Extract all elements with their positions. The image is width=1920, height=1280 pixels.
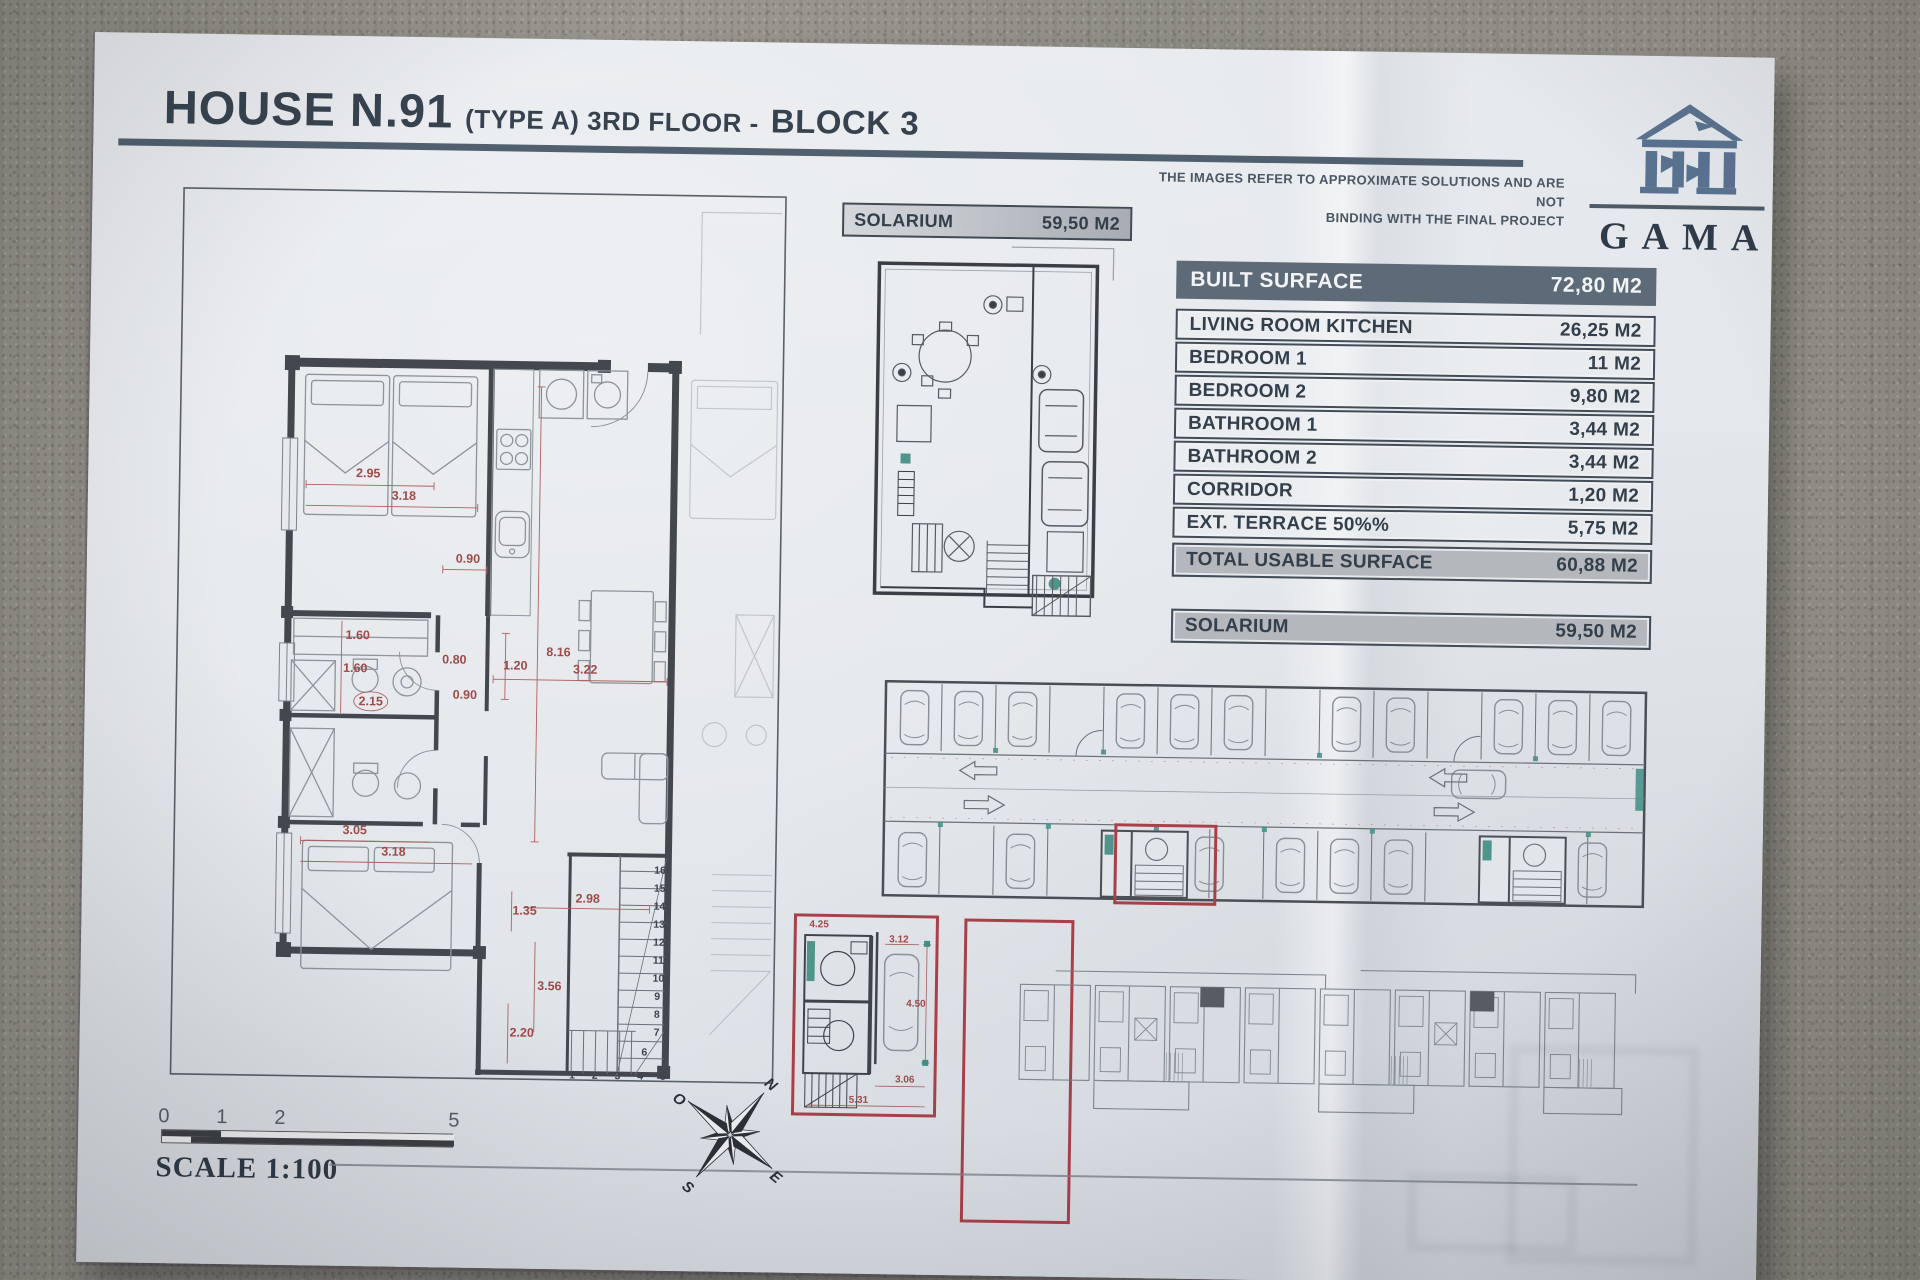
scale-tick: 0 [158, 1105, 169, 1128]
svg-text:3.22: 3.22 [573, 662, 598, 676]
total-label: TOTAL USABLE SURFACE [1186, 549, 1433, 575]
gama-temple-icon [1623, 96, 1755, 198]
svg-text:1.35: 1.35 [512, 904, 537, 918]
solarium-plan-label: SOLARIUM [854, 209, 954, 232]
svg-text:3.56: 3.56 [537, 979, 562, 993]
logo-word: GAMA [1589, 214, 1765, 261]
row-value: 1,20 M2 [1568, 484, 1639, 507]
page-title: HOUSE N.91 (TYPE A) 3RD FLOOR - BLOCK 3 [163, 79, 919, 146]
table-row: LIVING ROOM KITCHEN 26,25 M2 [1175, 309, 1655, 347]
table-row: CORRIDOR 1,20 M2 [1173, 474, 1653, 512]
windows [275, 438, 298, 933]
svg-text:1.60: 1.60 [345, 628, 370, 642]
row-value: 9,80 M2 [1570, 385, 1641, 408]
row-value: 3,44 M2 [1569, 451, 1640, 474]
surface-table: BUILT SURFACE 72,80 M2 LIVING ROOM KITCH… [1177, 261, 1657, 268]
svg-text:4.25: 4.25 [809, 919, 829, 930]
solarium-label: SOLARIUM [1185, 615, 1289, 639]
svg-text:2.20: 2.20 [509, 1025, 534, 1039]
stair-core-2 [1479, 836, 1566, 903]
svg-text:3.05: 3.05 [342, 823, 367, 837]
solarium-floorplan [836, 236, 1132, 622]
solarium-plan-value: 59,50 M2 [1042, 212, 1121, 234]
dimension-lines [297, 383, 671, 1066]
plan-sheet: HOUSE N.91 (TYPE A) 3RD FLOOR - BLOCK 3 … [76, 32, 1775, 1280]
svg-text:3.18: 3.18 [381, 844, 406, 858]
scale-tick: 5 [448, 1110, 459, 1133]
svg-text:0.90: 0.90 [453, 688, 478, 702]
svg-text:15: 15 [654, 883, 666, 895]
row-label: CORRIDOR [1187, 478, 1293, 502]
row-value: 26,25 M2 [1560, 319, 1642, 342]
table-total-row: TOTAL USABLE SURFACE 60,88 M2 [1172, 543, 1652, 584]
row-label: BEDROOM 2 [1188, 379, 1306, 403]
svg-text:5.31: 5.31 [849, 1095, 869, 1106]
svg-text:13: 13 [653, 919, 665, 931]
svg-text:2.98: 2.98 [575, 891, 600, 905]
svg-text:6: 6 [641, 1047, 647, 1059]
title-block: BLOCK 3 [770, 102, 919, 142]
logo-underline [1589, 204, 1764, 211]
row-label: BEDROOM 1 [1189, 346, 1307, 370]
svg-text:3.18: 3.18 [392, 489, 417, 503]
scale-label: SCALE 1:100 [155, 1151, 338, 1187]
svg-text:4.50: 4.50 [906, 999, 926, 1010]
header-value: 72,80 M2 [1551, 273, 1643, 298]
aisle-arrows [959, 761, 1475, 821]
scale-bar-graphic [161, 1129, 453, 1147]
main-floorplan: 16 15 14 13 12 11 10 9 8 7 6 1 2 3 4 5 [169, 186, 788, 1085]
compass-n: N [761, 1075, 781, 1096]
compass-e: E [766, 1168, 785, 1188]
title-type-floor: (TYPE A) 3RD FLOOR - [465, 104, 759, 140]
svg-text:11: 11 [653, 955, 664, 967]
disclaimer-line1: THE IMAGES REFER TO APPROXIMATE SOLUTION… [1144, 168, 1565, 212]
neighbour-unit [682, 212, 783, 1035]
table-header-row: BUILT SURFACE 72,80 M2 [1176, 261, 1657, 306]
core-block-1 [1200, 987, 1224, 1007]
compass-s: S [679, 1178, 697, 1198]
compass-o: O [669, 1089, 689, 1110]
parking-garage-plan [877, 653, 1656, 915]
table-row: BEDROOM 1 11 M2 [1175, 342, 1655, 380]
show-through-ghost [1406, 1172, 1577, 1255]
svg-text:9: 9 [654, 991, 660, 1003]
gama-logo: GAMA [1589, 95, 1766, 261]
table-row: BATHROOM 2 3,44 M2 [1173, 441, 1653, 479]
row-label: BATHROOM 1 [1188, 412, 1318, 436]
scale-tick: 2 [274, 1107, 285, 1130]
svg-text:14: 14 [654, 901, 666, 913]
svg-text:8: 8 [654, 1009, 660, 1021]
svg-text:3.12: 3.12 [889, 934, 909, 945]
svg-text:1.20: 1.20 [503, 658, 528, 672]
parking-detail-plan: 4.25 3.12 4.50 3.06 5.31 [790, 913, 939, 1118]
svg-text:2.15: 2.15 [358, 694, 383, 708]
svg-text:3.06: 3.06 [895, 1074, 915, 1085]
stairs [567, 854, 666, 1077]
row-label: LIVING ROOM KITCHEN [1189, 313, 1412, 338]
table-row: BATHROOM 1 3,44 M2 [1174, 408, 1654, 446]
solarium-plan-header: SOLARIUM 59,50 M2 [842, 202, 1132, 240]
svg-text:7: 7 [654, 1027, 660, 1039]
row-label: BATHROOM 2 [1187, 445, 1317, 469]
scale-tick: 1 [216, 1106, 227, 1129]
svg-text:12: 12 [653, 937, 665, 949]
solarium-value: 59,50 M2 [1555, 621, 1637, 644]
header-label: BUILT SURFACE [1190, 268, 1363, 295]
row-label: EXT. TERRACE 50%% [1186, 511, 1389, 536]
table-row: EXT. TERRACE 50%% 5,75 M2 [1172, 507, 1652, 545]
table-solarium-row: SOLARIUM 59,50 M2 [1171, 609, 1651, 650]
row-value: 5,75 M2 [1568, 517, 1639, 540]
total-value: 60,88 M2 [1556, 555, 1638, 578]
core-block-2 [1470, 991, 1494, 1011]
title-house: HOUSE N.91 [163, 79, 453, 138]
svg-text:16: 16 [654, 865, 666, 877]
row-value: 3,44 M2 [1569, 418, 1640, 441]
svg-text:0.80: 0.80 [442, 652, 467, 666]
svg-text:8.16: 8.16 [546, 645, 571, 659]
disclaimer: THE IMAGES REFER TO APPROXIMATE SOLUTION… [1144, 168, 1565, 231]
svg-text:0.90: 0.90 [456, 552, 481, 566]
svg-text:2.95: 2.95 [356, 466, 381, 480]
compass-rose-icon: N E S O [659, 1062, 801, 1204]
row-value: 11 M2 [1588, 352, 1642, 375]
table-row: BEDROOM 2 9,80 M2 [1174, 375, 1654, 413]
svg-text:1 2 3 4 5: 1 2 3 4 5 [569, 1069, 673, 1083]
svg-text:10: 10 [652, 973, 664, 985]
svg-text:1.60: 1.60 [343, 661, 368, 675]
